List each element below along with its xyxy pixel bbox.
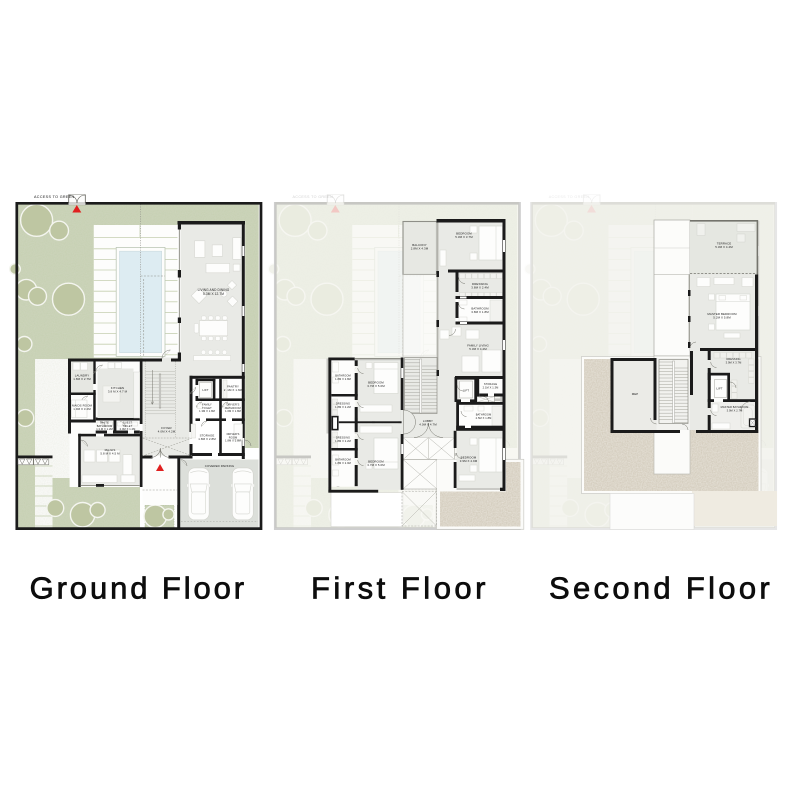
- svg-text:BALCONY2.8M X 4.3M: BALCONY2.8M X 4.3M: [411, 243, 429, 251]
- svg-text:DRESSING1.8M X 2.2M: DRESSING1.8M X 2.2M: [335, 436, 351, 443]
- svg-text:BATHROOM1.8M X 2.9M: BATHROOM1.8M X 2.9M: [335, 458, 351, 465]
- svg-text:STORAGE2.1M X 1.3M: STORAGE2.1M X 1.3M: [483, 382, 499, 389]
- svg-text:TERRACE5.3M X 4.4M: TERRACE5.3M X 4.4M: [715, 242, 733, 250]
- svg-text:DRESSING3.8M X 2.4M: DRESSING3.8M X 2.4M: [471, 282, 489, 290]
- svg-text:LIFT: LIFT: [463, 389, 469, 393]
- svg-text:First Floor: First Floor: [311, 571, 489, 606]
- svg-text:BATHROOM2.5M X 1.8M: BATHROOM2.5M X 1.8M: [476, 413, 492, 420]
- svg-text:DRESSING3.9M X 3.7M: DRESSING3.9M X 3.7M: [726, 357, 742, 364]
- svg-text:BEDROOM3.7M X 5.0M: BEDROOM3.7M X 5.0M: [367, 460, 385, 468]
- svg-text:MEP: MEP: [632, 392, 639, 396]
- svg-text:Ground Floor: Ground Floor: [30, 571, 247, 606]
- svg-text:Second Floor: Second Floor: [549, 571, 773, 606]
- svg-text:DRESSING1.8M X 2.2M: DRESSING1.8M X 2.2M: [335, 402, 351, 409]
- svg-text:BATHROOM3.8M X 1.8M: BATHROOM3.8M X 1.8M: [471, 307, 489, 315]
- svg-text:LIFT: LIFT: [716, 387, 722, 391]
- svg-text:BATHROOM1.8M X 2.8M: BATHROOM1.8M X 2.8M: [335, 374, 351, 381]
- svg-text:FAMILY LIVING5.3M X 4.2M: FAMILY LIVING5.3M X 4.2M: [467, 344, 489, 352]
- svg-text:BEDROOM3.9M X 4.9M: BEDROOM3.9M X 4.9M: [460, 456, 478, 464]
- svg-text:BEDROOM5.3M X 3.7M: BEDROOM5.3M X 3.7M: [455, 232, 473, 240]
- svg-text:BEDROOM3.7M X 5.0M: BEDROOM3.7M X 5.0M: [367, 381, 385, 389]
